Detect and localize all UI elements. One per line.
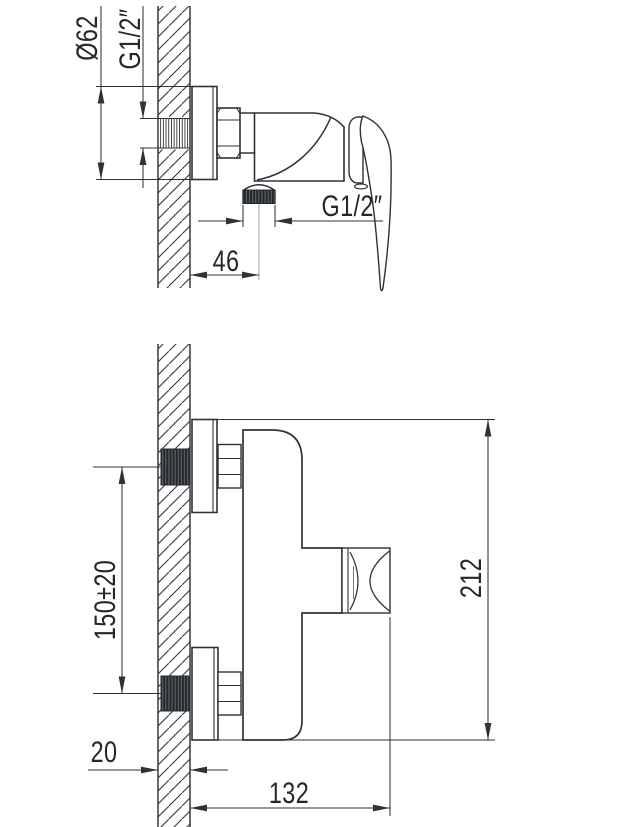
- dim-inlet-thread: G1/2″: [113, 6, 146, 188]
- inlet-thread-in-wall: [160, 119, 190, 149]
- technical-drawing-page: Ø62 G1/2″ G1/2″ 46: [0, 0, 618, 827]
- wall-section-side: [140, 6, 190, 288]
- union-nut-upper: [218, 445, 241, 489]
- overall-width-label: 132: [269, 776, 309, 809]
- flange-diameter-label: Ø62: [70, 15, 103, 60]
- escutcheon-lower: [192, 648, 218, 741]
- handle-detail-ellipse: [355, 184, 368, 189]
- outlet-thread-dark: [243, 190, 275, 204]
- side-view: Ø62 G1/2″ G1/2″ 46: [70, 6, 391, 291]
- body-contour-curve: [257, 117, 331, 180]
- dim-outlet-offset-46: 46: [190, 244, 259, 278]
- dim-overall-height-212: 212: [454, 420, 491, 741]
- overall-height-label: 212: [454, 558, 487, 598]
- shower-mixer-dimension-drawing: Ø62 G1/2″ G1/2″ 46: [0, 0, 618, 827]
- escutcheon-upper: [192, 420, 217, 513]
- wall-thickness-label: 20: [91, 735, 118, 768]
- union-nut-side: [217, 108, 240, 158]
- inlet-thread-lower: [161, 676, 190, 711]
- union-nut-lower: [218, 672, 241, 715]
- wall-hatch-front: [158, 344, 190, 827]
- center-distance-label: 150±20: [88, 560, 121, 640]
- dim-outlet-thread: G1/2″: [198, 189, 383, 227]
- dim-center-distance-150: 150±20: [88, 467, 161, 694]
- wall-section-front: [158, 344, 190, 827]
- inlet-thread-upper: [161, 449, 190, 485]
- shower-outlet-side: [243, 185, 275, 280]
- mixer-body-front: [243, 430, 342, 740]
- front-view: 150±20 212 20 132: [88, 344, 495, 827]
- outlet-offset-label: 46: [213, 244, 240, 277]
- escutcheon-flange-side: [192, 87, 217, 180]
- handle-front: [342, 548, 390, 613]
- outlet-thread-label: G1/2″: [322, 189, 383, 222]
- mixer-body-side: [240, 113, 344, 181]
- inlet-thread-label: G1/2″: [113, 9, 146, 70]
